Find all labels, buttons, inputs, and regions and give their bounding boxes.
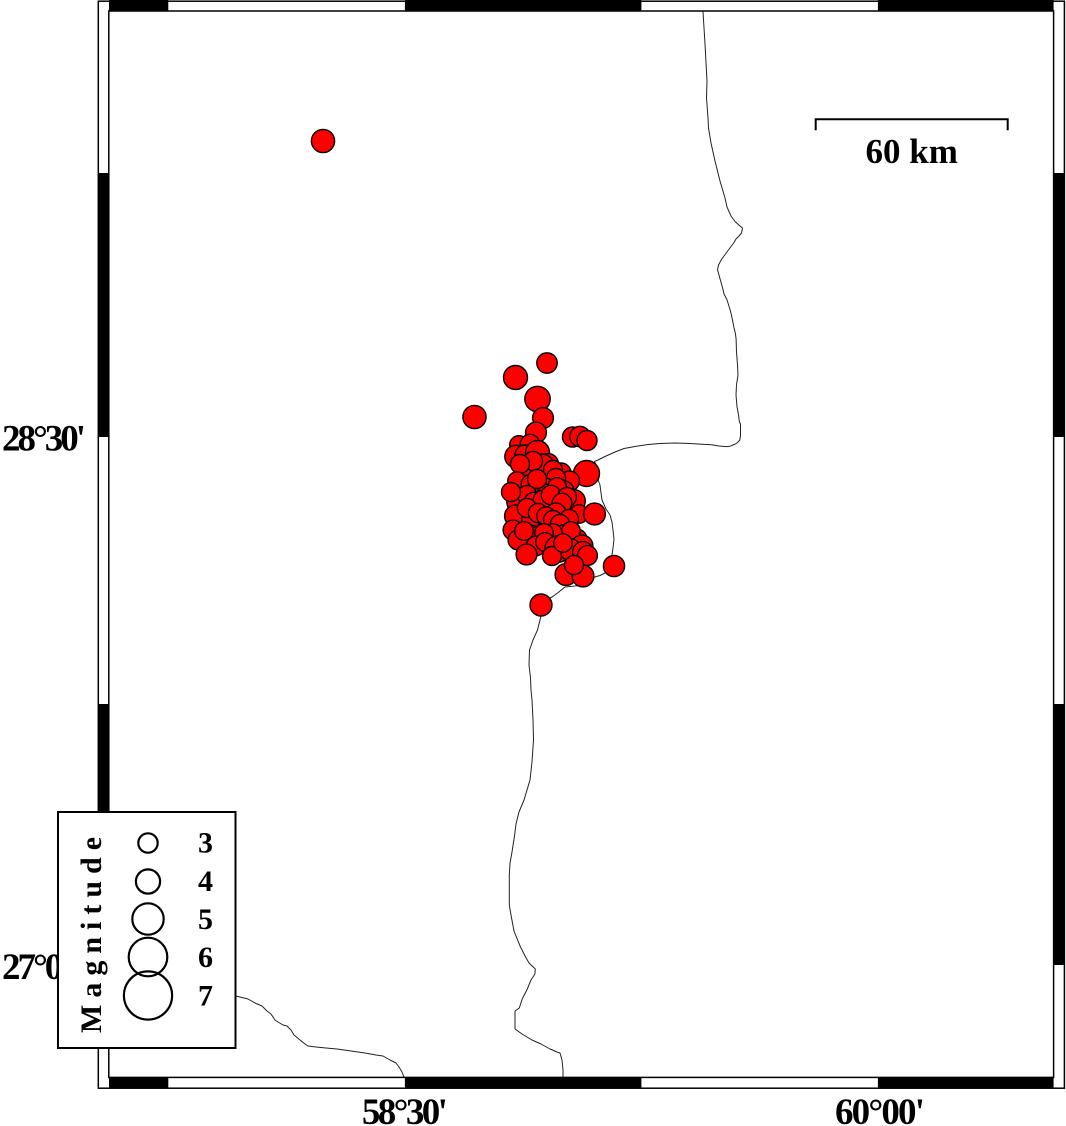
svg-text:3: 3 (198, 827, 213, 860)
svg-text:6: 6 (198, 941, 213, 974)
svg-text:5: 5 (198, 903, 213, 936)
svg-text:28°30': 28°30' (2, 419, 86, 460)
svg-text:60°00': 60°00' (835, 1092, 925, 1126)
svg-text:Magnitude: Magnitude (75, 830, 108, 1033)
svg-text:58°30': 58°30' (362, 1092, 448, 1126)
svg-text:60 km: 60 km (866, 132, 958, 171)
svg-text:4: 4 (198, 865, 213, 898)
svg-text:7: 7 (198, 980, 213, 1013)
